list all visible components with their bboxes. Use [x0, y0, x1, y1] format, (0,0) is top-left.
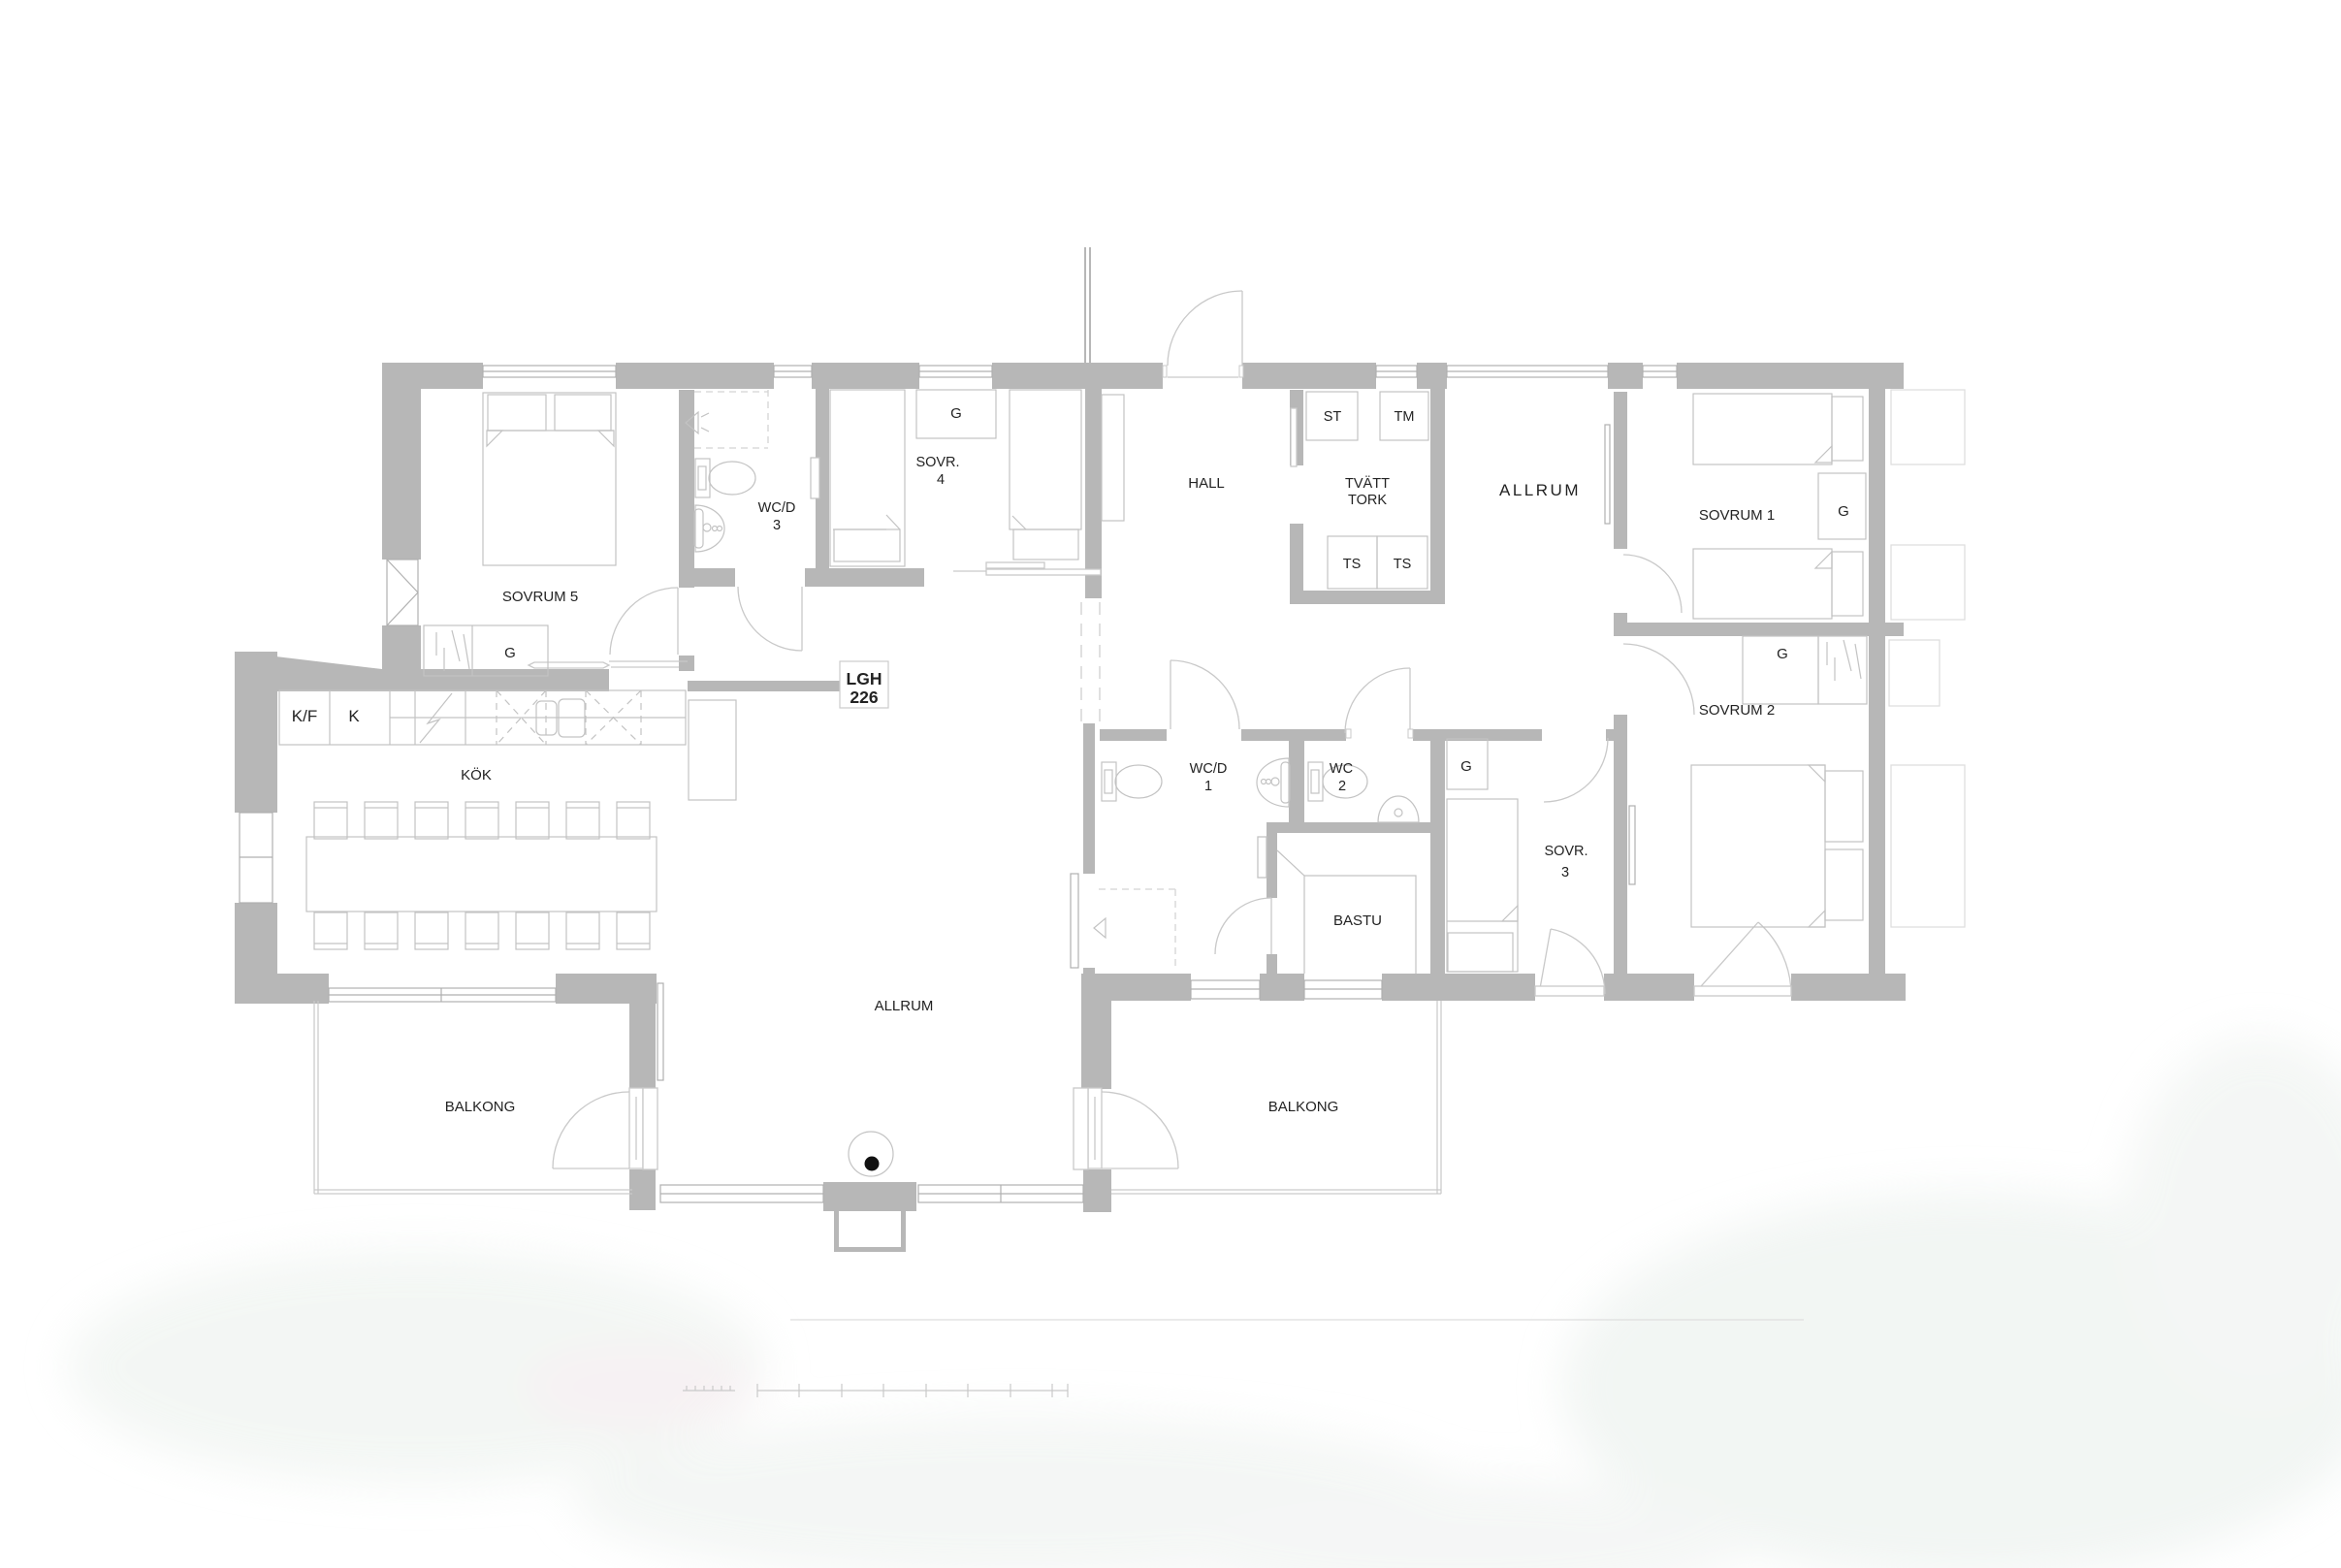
svg-text:TVÄTT: TVÄTT	[1345, 475, 1390, 492]
svg-text:K/F: K/F	[292, 707, 317, 725]
svg-text:G: G	[504, 645, 516, 661]
svg-text:TS: TS	[1394, 557, 1412, 572]
svg-text:SOVRUM 2: SOVRUM 2	[1699, 702, 1775, 719]
svg-text:K: K	[348, 707, 360, 725]
svg-text:ST: ST	[1324, 409, 1342, 425]
svg-text:ALLRUM: ALLRUM	[875, 998, 934, 1014]
svg-text:SOVR.: SOVR.	[915, 455, 959, 470]
svg-text:BASTU: BASTU	[1333, 912, 1382, 929]
svg-text:226: 226	[850, 688, 878, 707]
svg-text:G: G	[1777, 646, 1788, 662]
svg-text:TS: TS	[1343, 557, 1362, 572]
svg-text:HALL: HALL	[1188, 475, 1225, 492]
svg-text:KÖK: KÖK	[461, 766, 492, 784]
svg-text:WC/D: WC/D	[758, 500, 796, 516]
svg-text:2: 2	[1338, 779, 1346, 794]
svg-text:3: 3	[1561, 865, 1569, 880]
svg-text:4: 4	[937, 472, 945, 488]
svg-text:G: G	[1838, 503, 1849, 520]
svg-text:SOVRUM 1: SOVRUM 1	[1699, 507, 1775, 524]
svg-text:1: 1	[1204, 779, 1212, 794]
svg-text:SOVR.: SOVR.	[1544, 844, 1587, 859]
svg-text:BALKONG: BALKONG	[445, 1099, 516, 1115]
svg-text:G: G	[950, 405, 962, 422]
svg-text:G: G	[1460, 758, 1472, 775]
svg-text:BALKONG: BALKONG	[1268, 1099, 1339, 1115]
svg-text:3: 3	[773, 518, 781, 533]
svg-text:TORK: TORK	[1348, 493, 1387, 508]
svg-text:WC/D: WC/D	[1190, 761, 1228, 777]
svg-text:WC: WC	[1330, 761, 1353, 777]
svg-text:LGH: LGH	[847, 669, 882, 688]
svg-text:TM: TM	[1395, 409, 1415, 425]
svg-text:SOVRUM 5: SOVRUM 5	[502, 589, 578, 605]
svg-text:ALLRUM: ALLRUM	[1499, 481, 1581, 499]
